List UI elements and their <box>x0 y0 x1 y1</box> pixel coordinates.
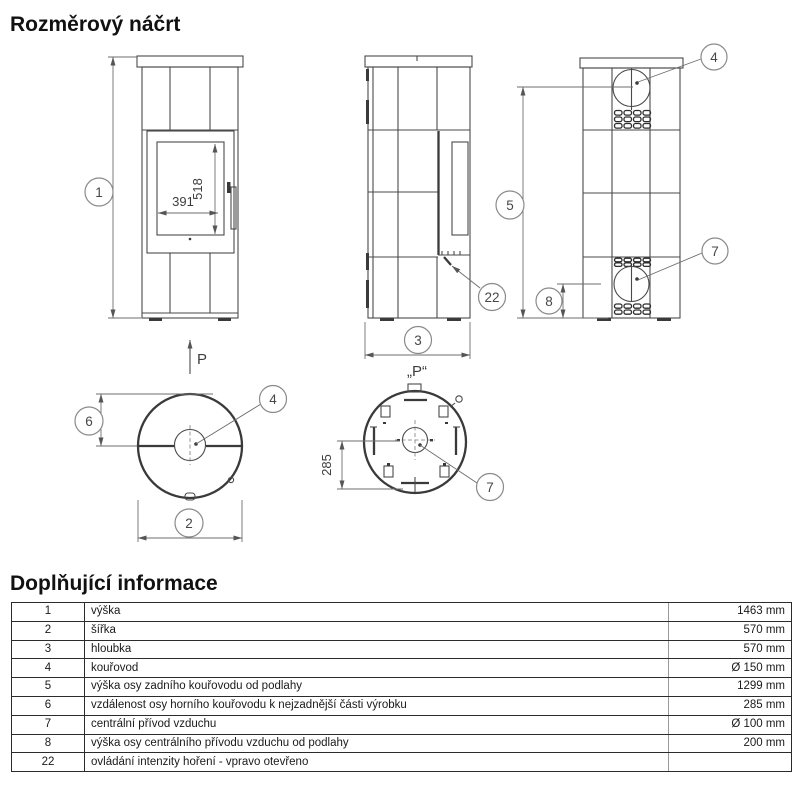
view-p-label: „P“ <box>407 363 427 380</box>
row-description: ovládání intenzity hoření - vpravo otevř… <box>85 753 669 772</box>
table-row: 2 šířka 570 mm <box>12 621 792 640</box>
callout-7-bottom-label: 7 <box>486 480 494 495</box>
dimensional-drawing: 1 518 391 P <box>0 0 800 575</box>
callout-1-label: 1 <box>95 185 103 200</box>
callout-5-label: 5 <box>506 198 514 213</box>
row-value: 1463 mm <box>669 603 792 622</box>
dim-width: 2 <box>138 500 242 542</box>
row-value <box>669 753 792 772</box>
row-value: 285 mm <box>669 696 792 715</box>
p-arrow-label: P <box>197 351 207 368</box>
row-description: šířka <box>85 621 669 640</box>
row-value: 200 mm <box>669 734 792 753</box>
row-number: 1 <box>12 603 85 622</box>
callout-22-group: 22 <box>452 266 506 311</box>
row-value: Ø 100 mm <box>669 715 792 734</box>
dim-glass-height: 518 <box>190 144 215 234</box>
row-value: 570 mm <box>669 621 792 640</box>
row-description: centrální přívod vzduchu <box>85 715 669 734</box>
dim-air-axis-offset: 285 <box>319 441 403 489</box>
callout-22-label: 22 <box>484 290 499 305</box>
dim-391-label: 391 <box>172 194 194 209</box>
dim-285-label: 285 <box>319 454 334 476</box>
callout-2-label: 2 <box>185 516 193 531</box>
row-description: výška osy zadního kouřovodu od podlahy <box>85 678 669 697</box>
dim-height: 1 <box>85 57 141 318</box>
row-number: 2 <box>12 621 85 640</box>
row-value: 1299 mm <box>669 678 792 697</box>
door-hinge-pin <box>227 182 231 193</box>
row-number: 8 <box>12 734 85 753</box>
dim-depth: 3 <box>365 322 470 359</box>
additional-info-table: 1 výška 1463 mm 2 šířka 570 mm 3 hloubka… <box>11 602 792 772</box>
callout-8-label: 8 <box>545 294 553 309</box>
row-description: výška <box>85 603 669 622</box>
callout-4-rear-label: 4 <box>710 50 718 65</box>
row-value: 570 mm <box>669 640 792 659</box>
bottom-view-p: 7 285 <box>319 384 504 501</box>
table-row: 4 kouřovod Ø 150 mm <box>12 659 792 678</box>
callout-7-bottom-group: 7 <box>420 445 504 501</box>
row-description: vzdálenost osy horního kouřovodu k nejza… <box>85 696 669 715</box>
table-row: 7 centrální přívod vzduchu Ø 100 mm <box>12 715 792 734</box>
row-number: 7 <box>12 715 85 734</box>
row-description: hloubka <box>85 640 669 659</box>
p-direction-arrow: P <box>190 340 207 374</box>
table-row: 5 výška osy zadního kouřovodu od podlahy… <box>12 678 792 697</box>
front-view: 1 518 391 P <box>85 56 243 374</box>
burn-control-lever <box>444 257 451 265</box>
dim-glass-width: 391 <box>158 194 218 213</box>
rear-view: 4 7 5 8 <box>496 44 728 321</box>
row-number: 3 <box>12 640 85 659</box>
table-row: 3 hloubka 570 mm <box>12 640 792 659</box>
info-title: Doplňující informace <box>10 572 218 596</box>
callout-7-rear-label: 7 <box>711 244 719 259</box>
callout-4-top-label: 4 <box>269 392 277 407</box>
table-row: 1 výška 1463 mm <box>12 603 792 622</box>
table-row: 22 ovládání intenzity hoření - vpravo ot… <box>12 753 792 772</box>
callout-7-rear-group: 7 <box>638 238 728 280</box>
top-grille <box>615 111 651 129</box>
table-row: 8 výška osy centrálního přívodu vzduchu … <box>12 734 792 753</box>
row-number: 6 <box>12 696 85 715</box>
dim-air-inlet-height: 8 <box>536 284 601 318</box>
row-number: 4 <box>12 659 85 678</box>
row-description: kouřovod <box>85 659 669 678</box>
callout-3-label: 3 <box>414 333 422 348</box>
row-value: Ø 150 mm <box>669 659 792 678</box>
row-number: 22 <box>12 753 85 772</box>
callout-6-label: 6 <box>85 414 93 429</box>
row-description: výška osy centrálního přívodu vzduchu od… <box>85 734 669 753</box>
top-view: 4 6 2 <box>75 386 287 543</box>
side-view: 22 3 „P“ <box>365 56 506 380</box>
row-number: 5 <box>12 678 85 697</box>
table-row: 6 vzdálenost osy horního kouřovodu k nej… <box>12 696 792 715</box>
